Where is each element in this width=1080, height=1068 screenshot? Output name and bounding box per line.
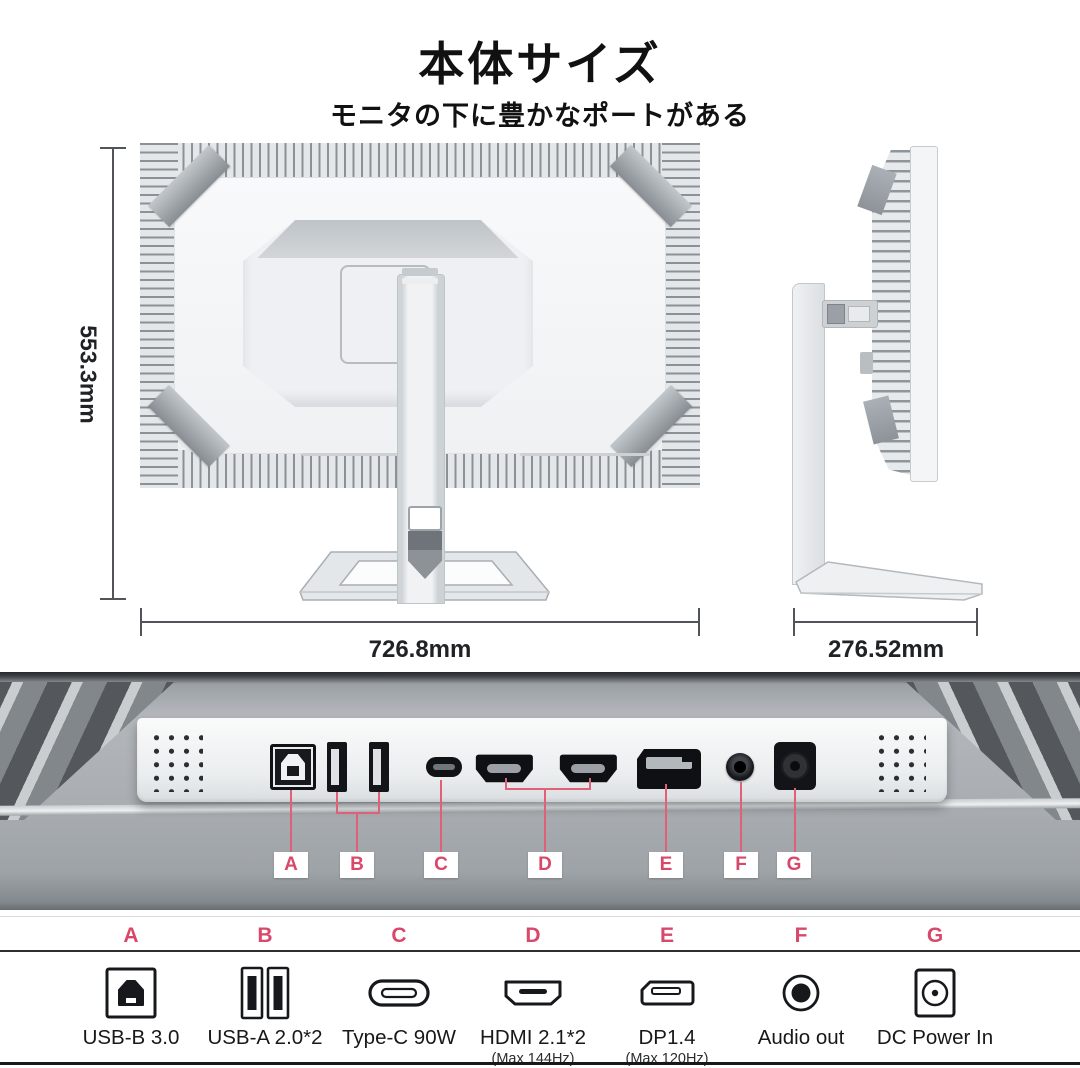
audio-out-port xyxy=(726,753,754,781)
legend-item-dc: DC Power In xyxy=(868,962,1002,1067)
callout-label-b: B xyxy=(340,852,374,878)
vent-holes-left xyxy=(145,728,203,792)
callout-line-d2 xyxy=(589,778,591,790)
usb-a-port-1 xyxy=(327,742,347,792)
legend-label: Type-C 90W xyxy=(342,1026,456,1050)
dimension-height-tick-top xyxy=(100,147,126,149)
legend-letter-b: B xyxy=(198,924,332,948)
vent-slot xyxy=(302,453,412,456)
back-center-hub xyxy=(243,220,533,407)
dimension-width-tick-left xyxy=(140,608,142,636)
audio-icon xyxy=(779,962,823,1024)
port-legend: A B C D E F G USB-B 3.0 xyxy=(0,910,1080,1068)
usb-a-port-2 xyxy=(369,742,389,792)
legend-item-dp: DP1.4 (Max 120Hz) xyxy=(600,962,734,1067)
dimension-height-tick-bottom xyxy=(100,598,126,600)
dimension-width-line xyxy=(141,621,699,623)
dc-center-pin xyxy=(790,761,800,771)
callout-label-f: F xyxy=(724,852,758,878)
legend-item-audio: Audio out xyxy=(734,962,868,1067)
legend-label: DC Power In xyxy=(877,1026,993,1050)
stand-hinge-cap xyxy=(402,268,438,276)
legend-label: DP1.4 xyxy=(639,1026,696,1050)
legend-divider-dark xyxy=(0,950,1080,952)
usb-c-port xyxy=(426,757,462,777)
legend-letter-e: E xyxy=(600,924,734,948)
dp-port xyxy=(634,746,704,792)
callout-label-d: D xyxy=(528,852,562,878)
callout-line-c xyxy=(440,780,442,852)
callout-label-e: E xyxy=(649,852,683,878)
monitor-spec-infographic: 本体サイズ モニタの下に豊かなポートがある 553.3mm 726.8mm xyxy=(0,0,1080,1068)
callout-line-d xyxy=(544,788,546,852)
vent-slot xyxy=(520,453,650,456)
legend-items-row: USB-B 3.0 USB-A 2.0*2 xyxy=(64,962,1002,1067)
usb-b-icon xyxy=(103,962,159,1024)
callout-line-g xyxy=(794,788,796,852)
legend-letter-a: A xyxy=(64,924,198,948)
side-hinge-pin xyxy=(848,306,870,322)
callout-line-e xyxy=(665,784,667,852)
dimension-depth-line xyxy=(794,621,977,623)
cable-management-hole xyxy=(408,506,442,531)
legend-label: USB-A 2.0*2 xyxy=(207,1026,322,1050)
audio-jack-hole xyxy=(734,761,746,773)
dimension-depth-tick-right xyxy=(976,608,978,636)
usb-a-icon xyxy=(238,962,292,1024)
hdmi-icon xyxy=(502,962,564,1024)
callout-bracket-d xyxy=(505,788,591,790)
legend-letter-d: D xyxy=(466,924,600,948)
legend-label: USB-B 3.0 xyxy=(83,1026,180,1050)
legend-item-type-c: Type-C 90W xyxy=(332,962,466,1067)
page-subtitle: モニタの下に豊かなポートがある xyxy=(0,94,1080,133)
callout-line-b xyxy=(356,812,358,852)
callout-line-a xyxy=(290,790,292,852)
dimension-height-line xyxy=(112,148,114,600)
legend-letter-f: F xyxy=(734,924,868,948)
legend-letter-c: C xyxy=(332,924,466,948)
callout-bracket-b xyxy=(336,812,380,814)
callout-line-b2 xyxy=(378,792,380,814)
legend-item-usb-b: USB-B 3.0 xyxy=(64,962,198,1067)
stand-base-side xyxy=(786,554,986,604)
dimension-width-tick-right xyxy=(698,608,700,636)
usb-b-port xyxy=(270,744,316,790)
dc-icon xyxy=(912,962,958,1024)
dc-power-port xyxy=(774,742,816,790)
usb-b-core xyxy=(287,766,299,776)
legend-item-hdmi: HDMI 2.1*2 (Max 144Hz) xyxy=(466,962,600,1067)
legend-divider-light xyxy=(0,916,1080,917)
dimension-depth-tick-left xyxy=(793,608,795,636)
legend-letter-row: A B C D E F G xyxy=(64,924,1002,948)
dc-barrel-ring xyxy=(781,752,809,780)
legend-letter-g: G xyxy=(868,924,1002,948)
callout-line-f xyxy=(740,782,742,852)
stand-column-side xyxy=(792,283,825,585)
side-cable-hook xyxy=(860,352,873,374)
usb-c-slot xyxy=(433,764,455,770)
callout-label-g: G xyxy=(777,852,811,878)
dp-icon xyxy=(637,962,697,1024)
usb-a-tab xyxy=(373,749,381,785)
callout-label-c: C xyxy=(424,852,458,878)
legend-label: HDMI 2.1*2 xyxy=(480,1026,586,1050)
vent-holes-right xyxy=(870,728,926,792)
callout-label-a: A xyxy=(274,852,308,878)
type-c-icon xyxy=(367,962,431,1024)
dimension-height-label: 553.3mm xyxy=(75,315,102,435)
callout-line-d1 xyxy=(505,778,507,790)
stand-hinge-cap-2 xyxy=(402,278,438,284)
legend-item-usb-a: USB-A 2.0*2 xyxy=(198,962,332,1067)
legend-label: Audio out xyxy=(758,1026,845,1050)
dimension-depth-label: 276.52mm xyxy=(786,636,986,664)
page-title: 本体サイズ xyxy=(0,28,1080,94)
side-hinge-joint xyxy=(827,304,845,324)
callout-line-b1 xyxy=(336,792,338,814)
legend-bottom-rule xyxy=(0,1062,1080,1065)
dimension-width-label: 726.8mm xyxy=(320,636,520,664)
side-bezel-edge xyxy=(910,146,938,482)
port-panel-photo: A B C D E F G xyxy=(0,672,1080,910)
usb-a-tab xyxy=(331,749,339,785)
